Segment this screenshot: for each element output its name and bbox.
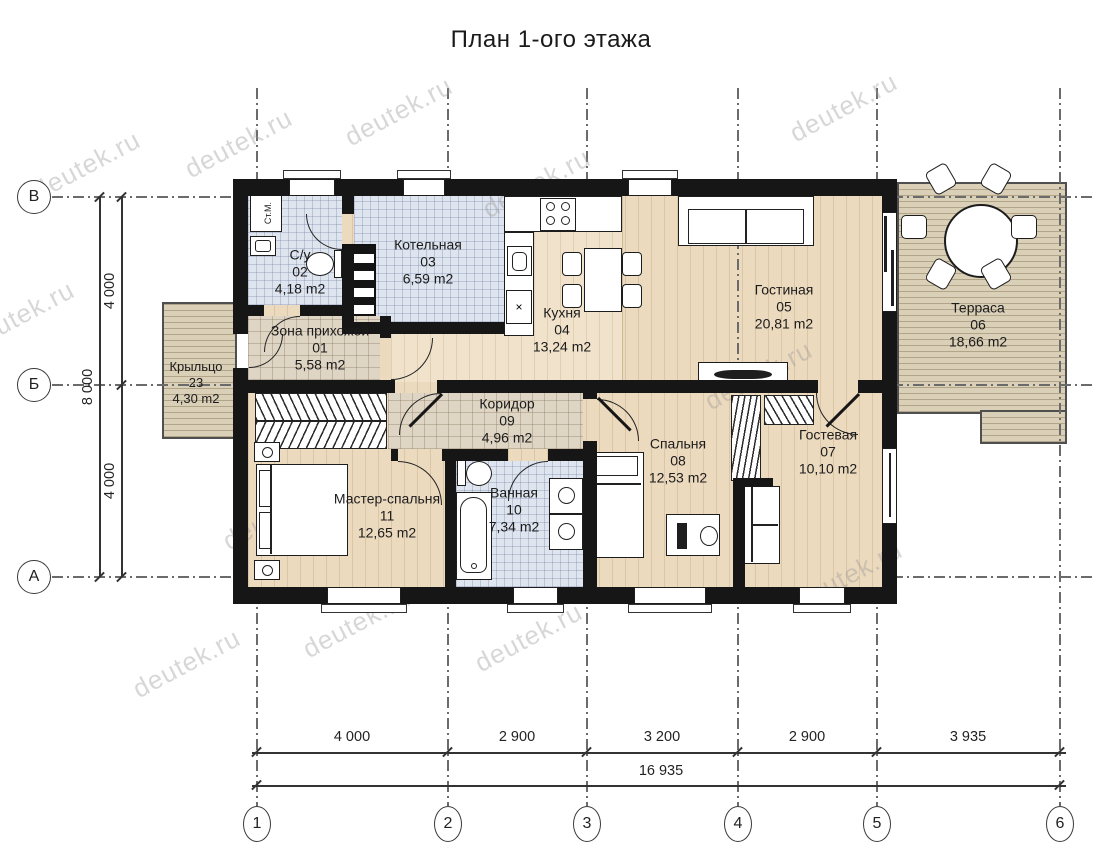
room-label-porch: Крыльцо234,30 m2	[169, 359, 222, 407]
dining-chair	[622, 284, 642, 308]
axis-col-4: 4	[724, 806, 752, 842]
washer-label: Ст.М.	[263, 202, 273, 224]
axis-row-v: В	[17, 180, 51, 214]
room-label-hallway: Зона прихожей015,58 m2	[271, 322, 369, 373]
wall-exterior-left	[233, 196, 248, 334]
bathtub	[456, 492, 492, 580]
wc-sink	[250, 236, 276, 256]
watermark: deutek.ru	[785, 66, 903, 148]
room-label-terrace: Терраса0618,66 m2	[949, 299, 1007, 350]
wall-corridor-top	[437, 380, 583, 393]
nightstand	[254, 560, 280, 580]
wall-exterior-left	[233, 368, 248, 587]
wall-bedroom-guest-stub	[745, 478, 773, 487]
axis-col-6: 6	[1046, 806, 1074, 842]
watermark: deutek.ru	[340, 70, 458, 152]
desk-chair	[700, 526, 718, 546]
guest-sofa	[740, 486, 780, 564]
wardrobe-guest	[764, 395, 814, 425]
window-sill	[283, 170, 341, 179]
axis-col-3: 3	[573, 806, 601, 842]
wall-wc-hallway	[248, 305, 264, 316]
tv	[714, 370, 772, 379]
dim-line-left-segments	[121, 197, 123, 577]
dim-3200: 3 200	[622, 729, 702, 745]
room-label-bath: Ванная107,34 m2	[489, 484, 540, 535]
bath-toilet-tank	[457, 460, 466, 486]
kitchen-sink	[507, 246, 532, 276]
watermark: deutek.ru	[128, 622, 246, 704]
watermark: deutek.ru	[180, 102, 298, 184]
wall-corridor-bottom	[548, 449, 583, 461]
watermark: deutek.ru	[0, 274, 80, 356]
dim-2900: 2 900	[477, 729, 557, 745]
stove	[540, 198, 576, 231]
dim-left-total: 8 000	[80, 352, 96, 422]
wall-wc-hallway	[300, 305, 354, 316]
wall-living-bottom	[583, 380, 818, 393]
nightstand	[254, 442, 280, 462]
dining-table	[584, 248, 622, 312]
sliding-door-panel	[891, 250, 894, 306]
wall-exterior-right	[882, 312, 897, 448]
room-label-corridor: Коридор094,96 m2	[479, 395, 534, 446]
axis-row-a: А	[17, 560, 51, 594]
window	[799, 587, 845, 604]
vanity-sink	[549, 478, 583, 514]
wall-corridor-bottom	[442, 449, 508, 461]
wall-boiler-kitchen	[354, 322, 504, 334]
room-label-boiler: Котельная036,59 m2	[394, 236, 462, 287]
terrace-chair	[1011, 215, 1037, 239]
window-sill	[628, 604, 712, 613]
wall-corridor-bedroom	[583, 393, 597, 399]
single-bed	[592, 452, 644, 558]
window	[628, 179, 672, 196]
window-sill	[507, 604, 564, 613]
room-label-kitchen: Кухня0413,24 m2	[533, 304, 591, 355]
dim-3935: 3 935	[928, 729, 1008, 745]
washing-machine: Ст.М.	[250, 194, 282, 232]
bath-toilet	[466, 461, 492, 486]
dim-4000: 4 000	[312, 729, 392, 745]
window	[327, 587, 401, 604]
room-label-bedroom: Спальня0812,53 m2	[649, 435, 707, 486]
wall-exterior-right	[882, 524, 897, 587]
page-title: План 1-ого этажа	[301, 26, 801, 54]
wall-corridor-bottom	[391, 449, 398, 461]
window	[634, 587, 706, 604]
dim-left-4000a: 4 000	[102, 256, 118, 326]
dishwasher: ×	[506, 290, 532, 324]
axis-col-2: 2	[434, 806, 462, 842]
window-sill	[397, 170, 451, 179]
floor-plan: План 1-ого этажа deutek.ru deutek.ru deu…	[0, 0, 1102, 862]
room-label-living: Гостиная0520,81 m2	[755, 281, 814, 332]
axis-row-b: Б	[17, 368, 51, 402]
axis-col-1: 1	[243, 806, 271, 842]
wall-hallway-kitchen	[380, 316, 391, 338]
dim-2900b: 2 900	[767, 729, 847, 745]
room-label-master: Мастер-спальня1112,65 m2	[334, 490, 440, 541]
room-label-guest: Гостевая0710,10 m2	[799, 426, 857, 477]
dim-left-4000b: 4 000	[102, 446, 118, 516]
dim-total: 16 935	[621, 763, 701, 779]
window-sill	[321, 604, 407, 613]
window	[403, 179, 445, 196]
wc-toilet-tank	[334, 250, 342, 278]
window-sill	[793, 604, 851, 613]
dim-line-left-total	[99, 197, 101, 577]
dim-line-total	[252, 785, 1066, 787]
dim-line-segments	[252, 752, 1066, 754]
wall-exterior-right	[882, 196, 897, 212]
dining-chair	[562, 252, 582, 276]
wall-hallway-bottom	[248, 380, 391, 393]
living-sofa	[678, 196, 814, 246]
wardrobe-master-1	[255, 393, 387, 421]
axis-col-5: 5	[863, 806, 891, 842]
wall-living-bottom	[858, 380, 882, 393]
wall-corridor-top	[391, 380, 395, 393]
window-sill	[622, 170, 678, 179]
wall-corridor-bedroom	[583, 441, 597, 587]
vanity-sink	[549, 514, 583, 550]
wall-master-bath	[445, 461, 456, 587]
window-guest-side	[882, 448, 897, 524]
terrace-chair	[901, 215, 927, 239]
window	[289, 179, 335, 196]
room-label-wc: С/у024,18 m2	[275, 246, 326, 297]
window	[513, 587, 558, 604]
sliding-door-panel	[884, 216, 887, 272]
dining-chair	[622, 252, 642, 276]
wardrobe-bedroom	[731, 395, 761, 481]
wall-wc-boiler	[342, 196, 354, 214]
terrace-step	[980, 410, 1067, 444]
wall-bedroom-guest	[733, 478, 745, 587]
